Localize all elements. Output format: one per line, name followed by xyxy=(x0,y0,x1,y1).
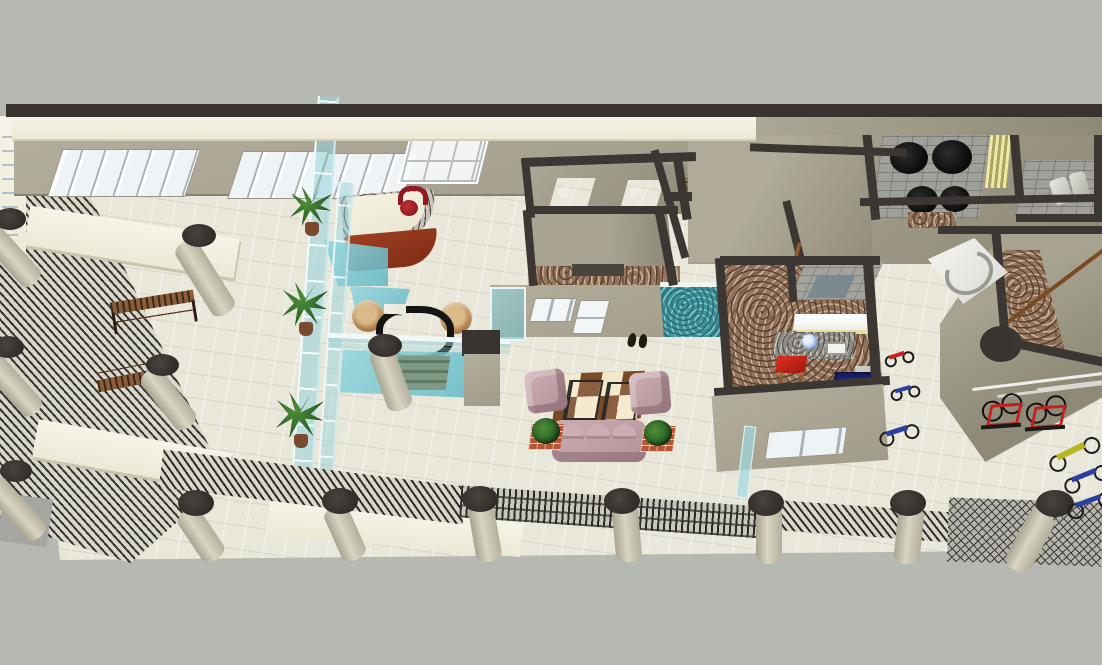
center-wall-window-1 xyxy=(530,299,575,321)
glass-side-table-1 xyxy=(562,380,603,420)
palm-3-fronds xyxy=(276,392,324,438)
column-mid-2-top xyxy=(146,354,179,376)
black-fixture-2 xyxy=(932,140,972,174)
tube-table-gap xyxy=(384,304,406,314)
north-fascia-taupe-right xyxy=(756,117,1102,135)
planter-left-bush xyxy=(532,418,560,444)
palm-1-fronds xyxy=(290,186,332,226)
armchair-left xyxy=(524,368,569,415)
potted-palm-2 xyxy=(280,282,330,338)
right-blue-bike-2-frame xyxy=(1075,494,1101,508)
small-blue-bike-1 xyxy=(889,380,919,400)
north-fascia-cream xyxy=(12,117,756,141)
east-cap-top xyxy=(938,226,1102,234)
palm-3-pot xyxy=(294,434,308,448)
potted-palm-1 xyxy=(288,186,334,238)
column-s6-top xyxy=(890,490,926,516)
kitchen-overhead-cabinet xyxy=(793,314,873,330)
kitchen-sink xyxy=(826,342,847,355)
column-mid-1-top xyxy=(182,224,216,247)
building-top-band xyxy=(6,104,1102,117)
ne-cap-h3 xyxy=(1016,214,1102,222)
palm-2-pot xyxy=(299,322,313,336)
planter-right-bush xyxy=(644,420,672,446)
kitchen-cap-top xyxy=(720,256,880,265)
rack-red-bike-2 xyxy=(1023,393,1070,436)
kitchen-south-wall xyxy=(712,384,889,472)
column-s4-top xyxy=(604,488,640,514)
black-fixture-1 xyxy=(890,142,928,174)
pillar-square-dark-top xyxy=(462,330,500,356)
column-mid-3-top xyxy=(368,334,402,357)
reception-chair-seat xyxy=(400,200,418,216)
room1-cap-notch xyxy=(664,192,692,201)
kitchen-red-table-top xyxy=(775,356,807,373)
column-s5-top xyxy=(748,490,784,516)
reception-glass-canopy xyxy=(400,136,487,182)
pillar-square-body xyxy=(464,354,500,406)
column-s2-top xyxy=(322,488,358,514)
floorplan-render xyxy=(0,0,1102,665)
center-room2-dark-sill xyxy=(572,264,624,276)
kitchen-blue-pot xyxy=(802,334,817,349)
potted-palm-3 xyxy=(274,392,326,450)
column-s3-top xyxy=(462,486,498,512)
north-window-group-1 xyxy=(49,150,200,196)
palm-2-fronds xyxy=(282,282,328,326)
mosaic-pool xyxy=(660,287,723,337)
yellow-bike-frame xyxy=(1056,442,1086,461)
armchair-right xyxy=(628,370,672,415)
right-blue-bike-1-frame xyxy=(1071,468,1097,482)
small-red-bike xyxy=(883,346,913,367)
palm-1-pot xyxy=(305,222,319,236)
rack-red-bike-1 xyxy=(979,391,1026,434)
column-west-3-top xyxy=(0,460,32,482)
column-s1-top xyxy=(178,490,214,516)
